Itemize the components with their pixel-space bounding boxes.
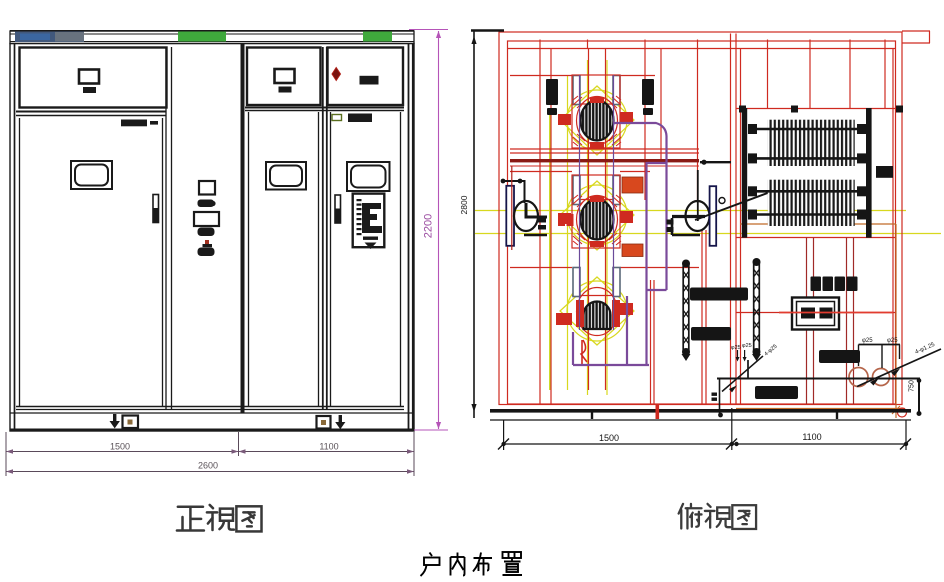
svg-text:2200: 2200 (423, 214, 435, 238)
svg-text:φ25: φ25 (887, 338, 898, 344)
svg-text:φ25: φ25 (862, 338, 873, 344)
svg-text:1500: 1500 (599, 433, 619, 443)
svg-text:φ25: φ25 (742, 343, 752, 349)
svg-text:1100: 1100 (319, 442, 338, 452)
svg-text:750: 750 (909, 380, 916, 392)
svg-text:φ25: φ25 (731, 345, 741, 351)
svg-text:1100: 1100 (802, 432, 821, 442)
svg-text:2600: 2600 (198, 461, 218, 471)
svg-text:1500: 1500 (110, 442, 130, 452)
svg-text:2800: 2800 (459, 195, 469, 214)
